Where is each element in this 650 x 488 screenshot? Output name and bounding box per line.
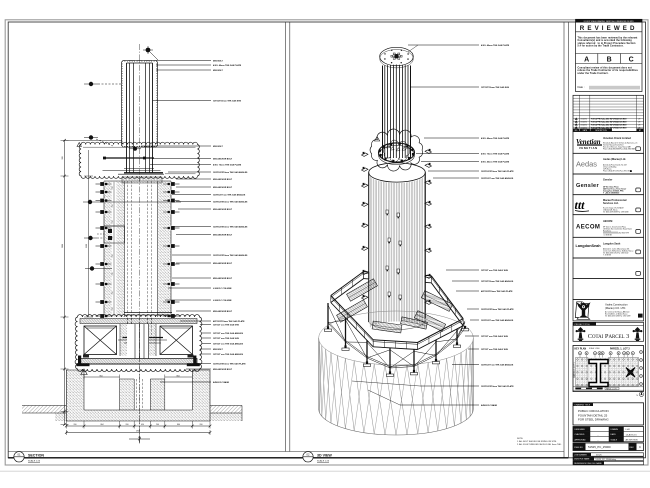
svg-text:Venetian Orient Limited: Venetian Orient Limited [603, 137, 631, 140]
svg-text:Services Ltd.: Services Ltd. [603, 202, 619, 205]
svg-text:Langdon Seah: Langdon Seah [603, 242, 621, 245]
svg-text:120T/120T mm THK G&S ANGLES: 120T/120T mm THK G&S ANGLES [481, 177, 514, 180]
svg-text:120T/120T/10mm THK G&S ANGLES: 120T/120T/10mm THK G&S ANGLES [213, 171, 248, 174]
svg-text:40T/120T/10mm THK G&S PLATE: 40T/120T/10mm THK G&S PLATE [481, 290, 513, 293]
svg-text:REFERENCE DWG FILE NAME: REFERENCE DWG FILE NAME [574, 462, 602, 465]
svg-text:NOTE:: NOTE: [517, 438, 524, 440]
svg-text:864: 864 [177, 424, 180, 426]
svg-text:M20 ANCHOR BOLT: M20 ANCHOR BOLT [213, 368, 233, 371]
svg-text:450: 450 [141, 424, 144, 426]
svg-text:under the Trade Contract.: under the Trade Contract. [578, 72, 609, 75]
svg-text:A2500 R.C BASE: A2500 R.C BASE [213, 381, 230, 384]
svg-text:750: 750 [112, 237, 114, 240]
svg-text:3D VIEW: 3D VIEW [317, 453, 332, 457]
svg-text:4 NO. 70mm THK G&S PLATE: 4 NO. 70mm THK G&S PLATE [481, 152, 510, 155]
svg-text:2900: 2900 [136, 431, 140, 433]
svg-text:120T/120T/10mm THK G&S PLATE: 120T/120T/10mm THK G&S PLATE [481, 385, 514, 388]
svg-text:Tel: (853) 2833 1710 Fax: 2833: Tel: (853) 2833 1710 Fax: 2833 1532 [603, 253, 629, 255]
svg-text:This document has been reviewe: This document has been reviewed by the r… [578, 36, 638, 39]
svg-text:DRAWING TITLE: DRAWING TITLE [575, 403, 591, 406]
svg-text:12T/12T mm THK G&S ANGLES: 12T/12T mm THK G&S ANGLES [213, 342, 244, 345]
svg-text:M20 ANCHOR BOLT: M20 ANCHOR BOLT [213, 208, 233, 211]
svg-text:M20 ANCHOR BOLT: M20 ANCHOR BOLT [213, 157, 233, 160]
svg-text:# 800 R.C COLUMN: # 800 R.C COLUMN [213, 288, 232, 290]
svg-text:5.4 for action by the Trade Co: 5.4 for action by the Trade Contractor. [578, 45, 624, 48]
svg-text:JOB NUMBER: JOB NUMBER [574, 455, 587, 457]
svg-text:12T/12T/10mm THK G&S SHS: 12T/12T/10mm THK G&S SHS [213, 100, 242, 102]
svg-text:12T/12T mm THK G&S SHS: 12T/12T mm THK G&S SHS [213, 338, 239, 340]
svg-text:M20 ANCHOR BOLT: M20 ANCHOR BOLT [213, 310, 233, 313]
svg-text:FOR APPROVAL AND INFORMATION R: FOR APPROVAL AND INFORMATION REV [591, 123, 627, 126]
svg-text:Date :: Date : [578, 85, 585, 89]
svg-text:864: 864 [101, 424, 104, 426]
svg-text:120T/120T/10mm THK G&S PLATE: 120T/120T/10mm THK G&S PLATE [481, 170, 514, 173]
svg-text:120T/120T/10mm THK G&S ANGLES: 120T/120T/10mm THK G&S ANGLES [213, 225, 248, 228]
svg-text:COTAI PARCEL 3: COTAI PARCEL 3 [588, 333, 630, 340]
svg-text:2. ALL FILLET WELDED SHOULD BE: 2. ALL FILLET WELDED SHOULD BE 6mm THK. [517, 443, 562, 446]
svg-text:AS SHOWN: AS SHOWN [626, 438, 638, 441]
svg-text:AECOM: AECOM [603, 220, 612, 223]
svg-text:PARCEL 1, LOT 2: PARCEL 1, LOT 2 [610, 347, 630, 350]
svg-text:120T/120T mm THK G&S ANGLES: 120T/120T mm THK G&S ANGLES [481, 363, 514, 366]
svg-text:B: B [607, 56, 612, 63]
svg-text:Phone: (853) 2882 8888 Fax: (8: Phone: (853) 2882 8888 Fax: (853) 2882 8… [603, 148, 635, 150]
svg-text:3500: 3500 [86, 244, 88, 248]
svg-text:A: A [584, 56, 589, 63]
svg-text:REV: REV [630, 447, 635, 449]
svg-text:SCALE 1:25: SCALE 1:25 [28, 460, 41, 463]
svg-text:SECTION: SECTION [28, 453, 44, 457]
svg-text:12T/12T mm THK GALV SHS: 12T/12T mm THK GALV SHS [481, 348, 509, 351]
svg-text:12T/12T mm THK G&S ANGLES: 12T/12T mm THK G&S ANGLES [213, 332, 244, 335]
svg-text:DATE: DATE [611, 433, 617, 436]
svg-text:14-AUG-15: 14-AUG-15 [626, 433, 638, 436]
svg-text:120T/120T mm THK G&S ANGLES: 120T/120T mm THK G&S ANGLES [481, 319, 514, 322]
svg-text:120T/120T/10mm THK G&S ANGLES: 120T/120T/10mm THK G&S ANGLES [213, 254, 248, 257]
svg-text:FOR APPROVAL AND INFORMATION R: FOR APPROVAL AND INFORMATION REV [591, 121, 627, 124]
svg-text:SCALE: SCALE [611, 438, 618, 441]
svg-text:Yadea Construction: Yadea Construction [605, 302, 628, 306]
svg-text:Tel: (853) 2872 2283 Fax: 2872: Tel: (853) 2872 2283 Fax: 2872 2289 [605, 316, 631, 318]
svg-text:51525: 51525 [596, 455, 602, 457]
svg-text:750: 750 [112, 273, 114, 276]
svg-text:750: 750 [112, 292, 114, 295]
svg-text:VENETIAN: VENETIAN [579, 146, 598, 150]
svg-text:120T/120T mm THK G&S ANGLES: 120T/120T mm THK G&S ANGLES [213, 193, 246, 196]
svg-text:C: C [639, 445, 641, 449]
svg-text:ttt: ttt [575, 198, 586, 212]
svg-text:FOR STEEL DRAWING: FOR STEEL DRAWING [578, 417, 609, 421]
svg-text:CHECKED: CHECKED [575, 434, 585, 436]
svg-text:12T/12T/10mm THK G&S ANGLES: 12T/12T/10mm THK G&S ANGLES [481, 280, 514, 283]
svg-text:120T/120T/10mm THK G&S PLATE: 120T/120T/10mm THK G&S PLATE [481, 308, 514, 311]
svg-text:51525_PC_25000.dwg: 51525_PC_25000.dwg [596, 459, 616, 461]
svg-text:M20 BOLT: M20 BOLT [213, 70, 224, 72]
svg-text:status referred to in Projec: status referred to in Project Procedure … [578, 42, 637, 45]
svg-text:200: 200 [126, 424, 129, 426]
svg-text:Consultants(s) and is accorded: Consultants(s) and is accorded the follo… [578, 39, 633, 42]
svg-text:M20 ANCHOR BOLT: M20 ANCHOR BOLT [213, 277, 233, 280]
svg-text:APPROVED: APPROVED [575, 438, 587, 441]
svg-text:4 NO. 70mm THK G&S PLATE: 4 NO. 70mm THK G&S PLATE [213, 163, 242, 166]
svg-text:1. ALL BOLT SHOULD BE FIXING O: 1. ALL BOLT SHOULD BE FIXING ON SITE. [517, 440, 557, 443]
svg-text:4 NO. 40mm THK G&S PLATE: 4 NO. 40mm THK G&S PLATE [481, 160, 510, 163]
svg-text:12T/12T mm THK G&S ANGLES: 12T/12T mm THK G&S ANGLES [213, 353, 244, 356]
svg-text:DWG NO: DWG NO [574, 447, 583, 449]
svg-text:4 NO. 40mm THK G&S PLATE: 4 NO. 40mm THK G&S PLATE [213, 64, 242, 67]
svg-text:12T/12T mm THK GALV SHS: 12T/12T mm THK GALV SHS [481, 269, 509, 272]
svg-text:LangdonSeah: LangdonSeah [576, 244, 602, 248]
svg-text:DRAWN: DRAWN [611, 428, 619, 431]
svg-text:300: 300 [62, 156, 64, 159]
svg-text:12T/12T mm THK G&S SHS: 12T/12T mm THK G&S SHS [213, 324, 239, 326]
svg-text:DESIGNED: DESIGNED [575, 429, 586, 431]
svg-text:M20 ANCHOR BOLT: M20 ANCHOR BOLT [213, 178, 233, 181]
svg-text:# 800 R.C COLUMN: # 800 R.C COLUMN [213, 300, 232, 302]
svg-text:4 NO. 40mm THK G&S PLATE: 4 NO. 40mm THK G&S PLATE [481, 44, 510, 47]
svg-text:120T/120T/10mm THK G&S ANGLES: 120T/120T/10mm THK G&S ANGLES [213, 200, 248, 203]
svg-text:relieve the Trade Contractor o: relieve the Trade Contractor of its resp… [578, 69, 639, 72]
svg-text:AECOM: AECOM [576, 225, 600, 231]
svg-text:750: 750 [112, 221, 114, 224]
svg-text:200: 200 [74, 424, 77, 426]
svg-text:M20 BOLT: M20 BOLT [213, 60, 224, 62]
svg-text:51525_PC_25000: 51525_PC_25000 [588, 445, 611, 449]
svg-text:Phone: (853) 2871 5952 Fax: 28: Phone: (853) 2871 5952 Fax: 2871 5956 [603, 170, 631, 172]
svg-text:05/08/15: 05/08/15 [581, 122, 588, 124]
svg-text:750: 750 [112, 255, 114, 258]
svg-text:DO NOT SCALE DRAWING. VERIFY A: DO NOT SCALE DRAWING. VERIFY ALL DIMENSI… [584, 20, 635, 23]
svg-text:Aedas (Macau) Ltd.: Aedas (Macau) Ltd. [603, 158, 626, 161]
svg-text:KEY PLAN: KEY PLAN [575, 347, 587, 350]
svg-text:China Law Building: China Law Building [603, 166, 616, 168]
svg-text:REVIEWED: REVIEWED [580, 25, 638, 32]
svg-text:21/F, Macau: 21/F, Macau [603, 168, 612, 170]
svg-text:12T/12T mm THK GALV SHS: 12T/12T mm THK GALV SHS [481, 335, 509, 338]
svg-text:SCALE 1:25: SCALE 1:25 [317, 460, 330, 463]
svg-text:M20 BOLT: M20 BOLT [213, 146, 224, 148]
svg-text:FOR APPROVAL AND INFORMATION R: FOR APPROVAL AND INFORMATION REV [591, 118, 627, 121]
svg-text:Gensler: Gensler [603, 179, 612, 182]
svg-text:Aedas: Aedas [576, 160, 597, 169]
svg-text:05/08/15: 05/08/15 [581, 124, 588, 126]
svg-text:Tel: (853) 2878 2839 Fax: 2878: Tel: (853) 2878 2839 Fax: 2878 2838 [603, 211, 629, 213]
svg-text:40T/120T/10mm THK G&S PLATE: 40T/120T/10mm THK G&S PLATE [213, 320, 245, 323]
svg-text:PARCEL 1, LOT 1: PARCEL 1, LOT 1 [573, 362, 576, 377]
svg-text:A2500 R.C BASE: A2500 R.C BASE [481, 404, 498, 407]
svg-text:M20 ANCHOR BOLT: M20 ANCHOR BOLT [213, 186, 233, 189]
svg-text:4 NO. 40mm THK G&S PLATE: 4 NO. 40mm THK G&S PLATE [481, 137, 510, 140]
svg-text:DWG FILE NAME: DWG FILE NAME [574, 458, 590, 461]
svg-text:Gensler: Gensler [576, 183, 599, 189]
svg-text:T 28 88 88: T 28 88 88 [603, 254, 611, 256]
svg-text:2996: 2996 [62, 244, 64, 248]
svg-text:750: 750 [112, 205, 114, 208]
svg-text:C: C [629, 56, 634, 63]
svg-text:T +86 20 3808 8800: T +86 20 3808 8800 [603, 193, 619, 195]
svg-text:(Macau) CO. LTD.: (Macau) CO. LTD. [605, 306, 626, 310]
svg-text:M20 ANCHOR BOLT: M20 ANCHOR BOLT [213, 233, 233, 236]
svg-text:864: 864 [100, 375, 103, 377]
svg-text:12T/12T/10mm THK G&S SHS: 12T/12T/10mm THK G&S SHS [481, 87, 510, 89]
svg-text:LHO: LHO [626, 429, 631, 431]
svg-text:M20 ANCHOR BOLT: M20 ANCHOR BOLT [213, 262, 233, 265]
svg-text:750: 750 [112, 308, 114, 311]
svg-text:200: 200 [200, 424, 203, 426]
svg-text:864: 864 [177, 375, 180, 377]
svg-text:200: 200 [156, 424, 159, 426]
svg-text:750: 750 [112, 187, 114, 190]
svg-text:05/08/15: 05/08/15 [581, 119, 588, 121]
svg-text:M20 BOLT: M20 BOLT [213, 349, 224, 351]
svg-text:120T/120T/10mm THK G&S PLATE: 120T/120T/10mm THK G&S PLATE [213, 362, 246, 365]
svg-text:Consultant review of this docu: Consultant review of this document does … [578, 66, 632, 69]
